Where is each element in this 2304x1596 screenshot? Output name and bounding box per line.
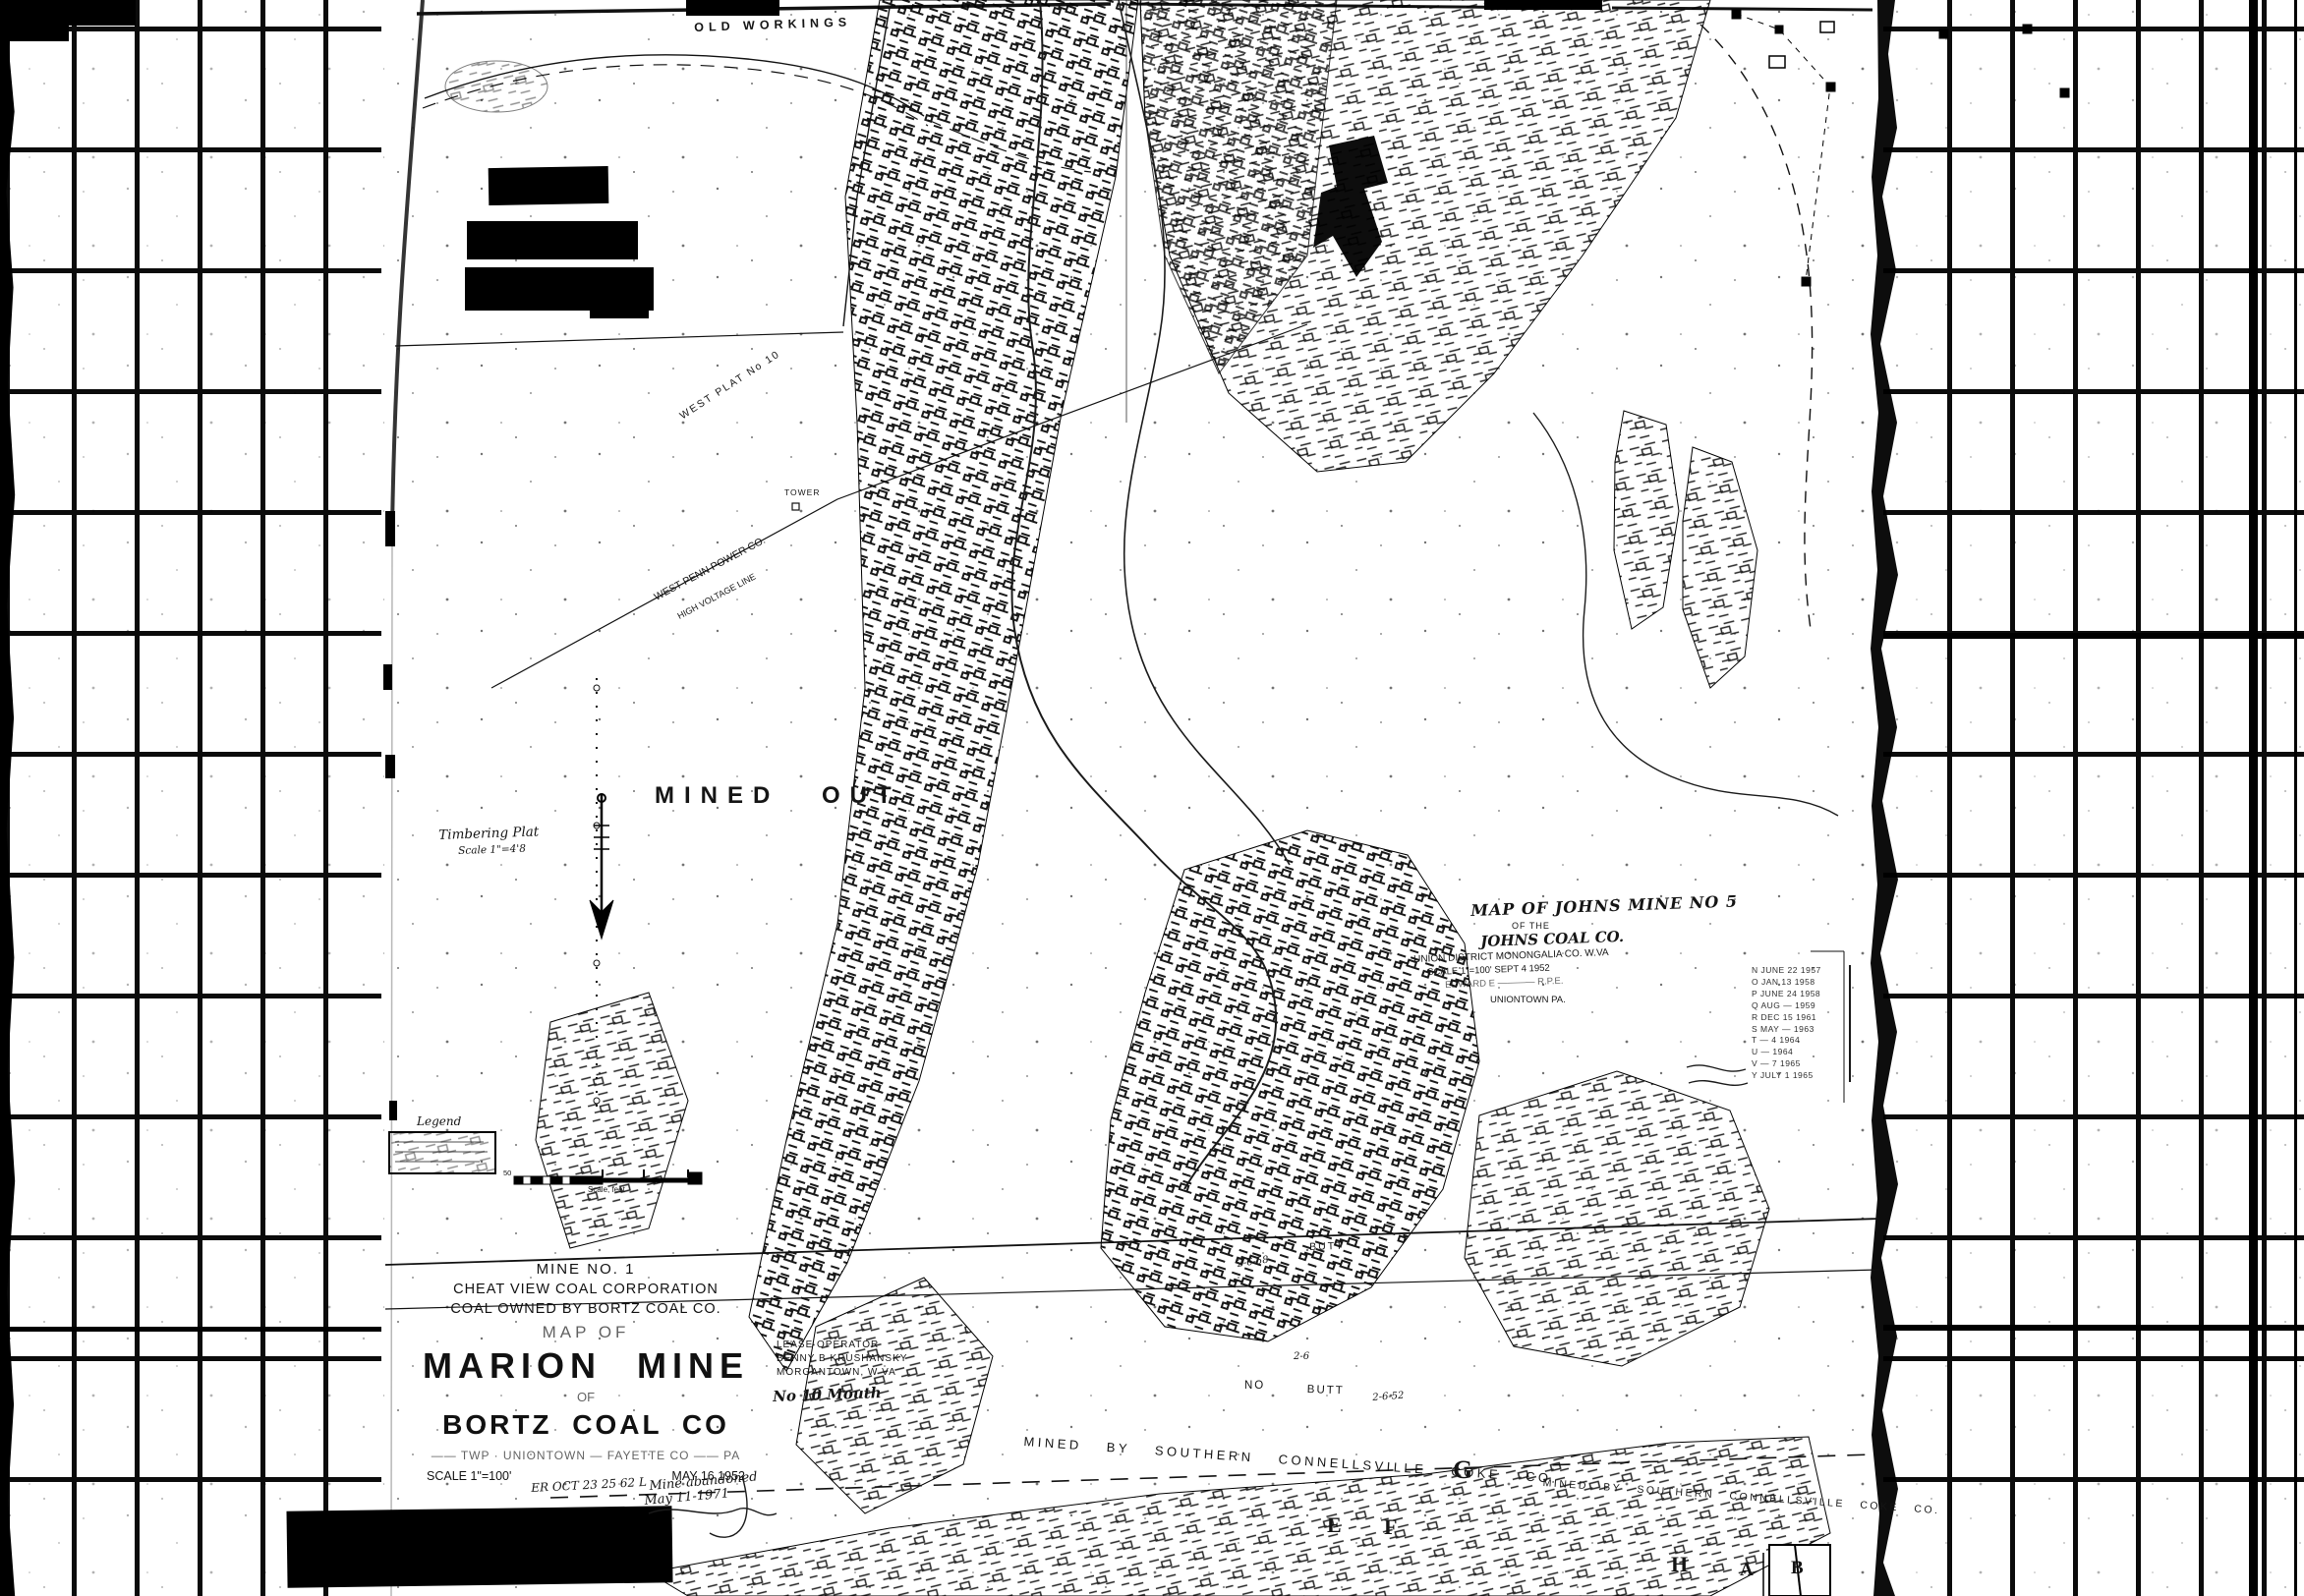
right-grid-panel — [1883, 0, 2304, 1596]
section-letter-h: H — [1671, 1553, 1688, 1575]
survey-row: T — 4 1964 — [1752, 1035, 1844, 1047]
mine-name-title: MARION MINE — [421, 1345, 751, 1387]
map-of-line: MAP OF — [421, 1323, 751, 1342]
johns-uniontown: UNIONTOWN PA. — [1490, 996, 1566, 1005]
timbering-plat-label: Timbering Plat — [438, 825, 539, 842]
coal-owned-line: COAL OWNED BY BORTZ COAL CO. — [421, 1301, 751, 1317]
survey-row: R DEC 15 1961 — [1752, 1012, 1844, 1024]
of-line: OF — [421, 1390, 751, 1404]
location-line: —— TWP · UNIONTOWN — FAYETTE CO —— PA — [421, 1449, 751, 1462]
survey-date-table: N JUNE 22 1957 O JAN 13 1958 P JUNE 24 1… — [1752, 965, 1851, 1082]
lease-operator-line2: BENNY B KRUSHANSKY — [777, 1354, 907, 1365]
tower-label: TOWER — [784, 488, 820, 497]
scale-note: SCALE 1"=100' — [427, 1469, 511, 1483]
date-annotation: 2-6 — [1294, 1352, 1309, 1363]
survey-row: O JAN 13 1958 — [1752, 977, 1844, 989]
lease-operator-line3: MORGANTOWN, W VA — [777, 1368, 896, 1379]
survey-row: Q AUG — 1959 — [1752, 1000, 1844, 1012]
corner-blot — [0, 0, 136, 26]
grid-heavy-line — [1883, 1325, 2304, 1331]
mine-no-line: MINE NO. 1 — [421, 1261, 751, 1278]
company-title: BORTZ COAL CO — [421, 1409, 751, 1441]
grid-heavy-rule — [2249, 0, 2258, 1596]
survey-row: V — 7 1965 — [1752, 1058, 1844, 1070]
survey-row: U — 1964 — [1752, 1047, 1844, 1058]
section-letter-g: G — [1453, 1456, 1472, 1483]
scale-number-label: 50 — [503, 1169, 511, 1177]
section-letter-f: F — [1384, 1515, 1397, 1538]
title-block: MINE NO. 1 CHEAT VIEW COAL CORPORATION C… — [421, 1261, 751, 1483]
section-letter-b: B — [1791, 1559, 1804, 1578]
survey-row: N JUNE 22 1957 — [1752, 965, 1844, 977]
survey-row: S MAY — 1963 — [1752, 1024, 1844, 1036]
section-letter-e: E — [1327, 1513, 1342, 1536]
survey-row: P JUNE 24 1958 — [1752, 989, 1844, 1000]
lease-operator-line1: LEASE OPERATOR — [777, 1340, 879, 1351]
no-butt-annotation-no: NO — [1244, 1380, 1265, 1392]
grid-heavy-line — [0, 1327, 381, 1332]
butt-annotation: BUTT — [1309, 1241, 1345, 1253]
scanned-mine-map: OLD WORKINGS MINED OUT Timbering Plat Sc… — [0, 0, 2304, 1596]
grid-heavy-line — [1883, 633, 2304, 639]
date-annotation: 2-6-52 — [1372, 1392, 1405, 1404]
corporation-line: CHEAT VIEW COAL CORPORATION — [421, 1282, 751, 1297]
grid-thin-rule — [2294, 0, 2297, 1596]
mined-out-label: MINED OUT — [655, 783, 901, 808]
survey-row: Y JULY 1 1965 — [1752, 1070, 1844, 1082]
no-butt-annotation-butt: BUTT — [1307, 1384, 1345, 1396]
legend-label: Legend — [417, 1115, 461, 1128]
corner-blot — [0, 26, 69, 41]
left-grid-panel — [0, 0, 381, 1596]
scale-feet-label: Scale, feet — [588, 1186, 625, 1194]
section-letter-a: A — [1740, 1561, 1754, 1580]
